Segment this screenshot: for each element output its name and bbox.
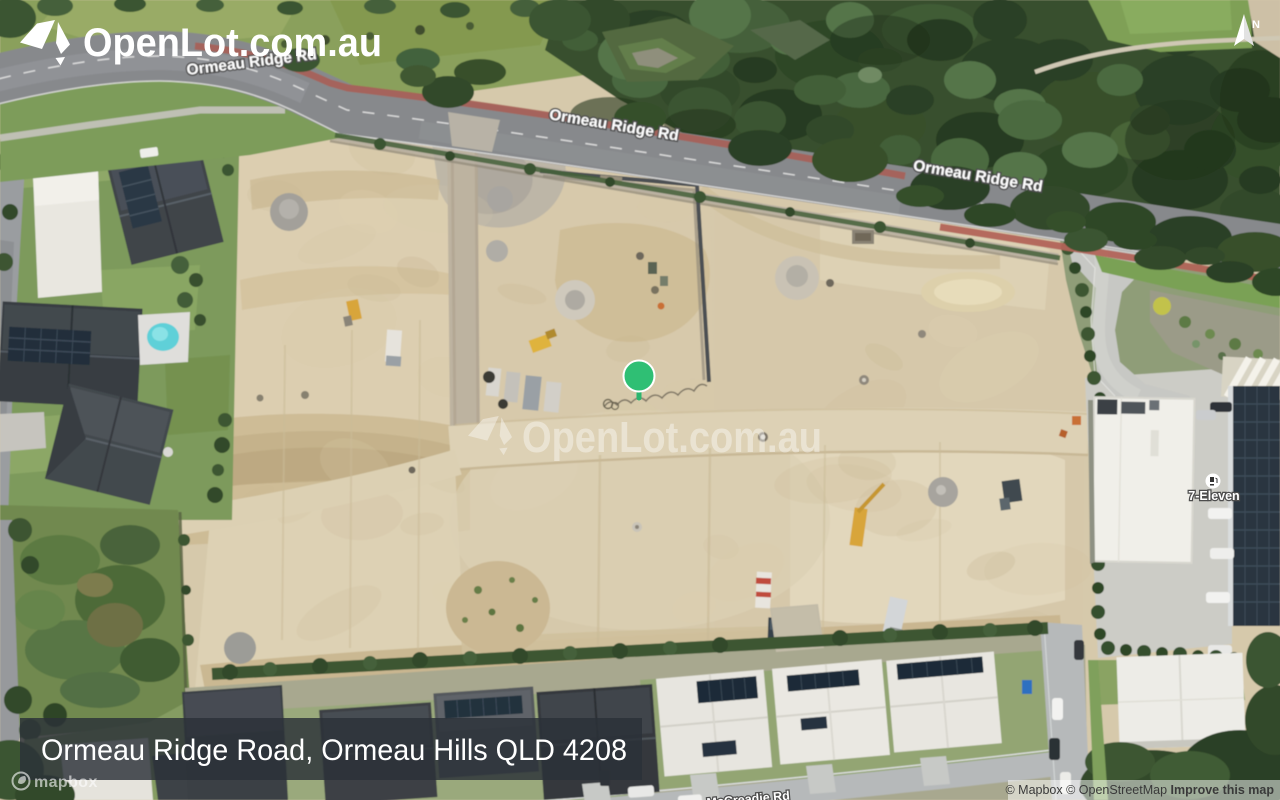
- svg-text:Ormeau Ridge Road, Ormeau Hill: Ormeau Ridge Road, Ormeau Hills QLD 4208: [41, 734, 627, 767]
- svg-text:N: N: [1252, 19, 1260, 31]
- svg-text:7-Eleven: 7-Eleven: [1188, 489, 1239, 503]
- svg-text:OpenLot.com.au: OpenLot.com.au: [522, 413, 822, 462]
- svg-text:© Mapbox © OpenStreetMap Impro: © Mapbox © OpenStreetMap Improve this ma…: [1005, 783, 1274, 797]
- svg-text:mapbox: mapbox: [34, 774, 98, 791]
- svg-text:OpenLot.com.au: OpenLot.com.au: [83, 21, 382, 65]
